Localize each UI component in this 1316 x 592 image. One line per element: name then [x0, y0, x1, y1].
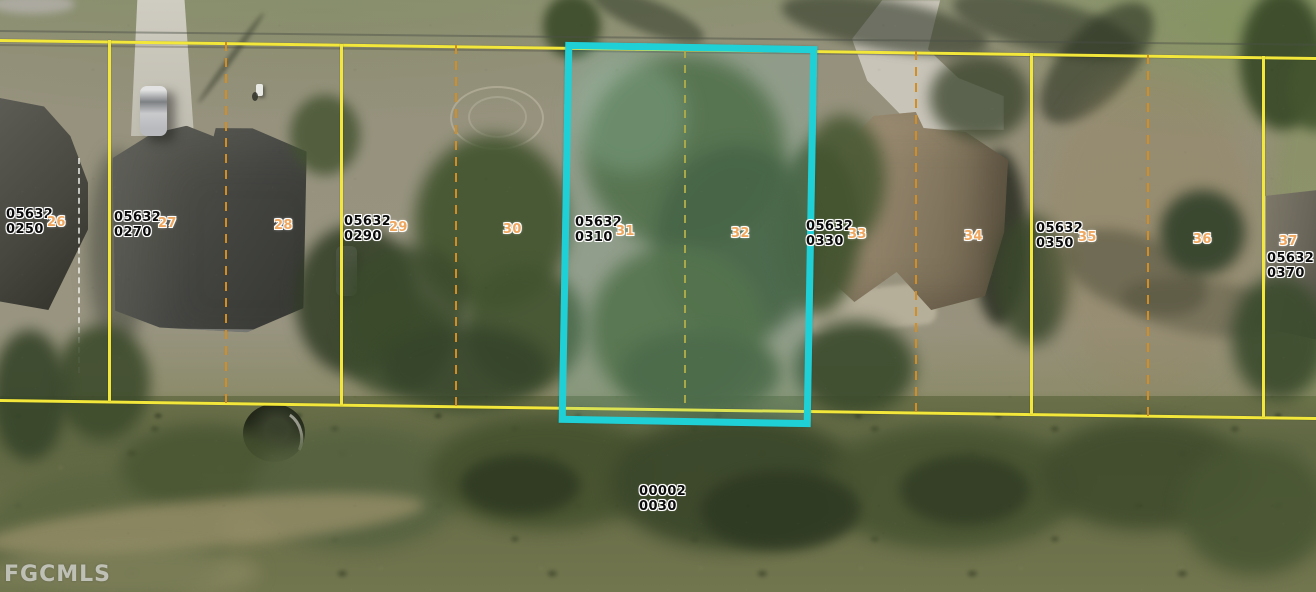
parcel-label-line1: 05632 — [806, 219, 853, 234]
parcel-label-05632-0370: 05632 0370 — [1267, 251, 1314, 281]
parcel-label-line1: 05632 — [1036, 221, 1083, 236]
parcel-label-line2: 0350 — [1036, 236, 1083, 251]
lot-number-28: 28 — [274, 218, 293, 233]
house-roof-left-edge — [0, 98, 88, 310]
watermark: FGCMLS — [4, 562, 111, 587]
parcel-label-line1: 00002 — [639, 484, 686, 499]
parcel-label-05632-0350: 05632 0350 — [1036, 221, 1083, 251]
tree-canopy — [55, 325, 150, 440]
palm-canopy — [930, 55, 1030, 140]
scrub-dark-clump — [460, 455, 580, 515]
parcel-label-line2: 0370 — [1267, 266, 1314, 281]
tree-canopy — [1232, 275, 1316, 400]
parcel-label-line1: 05632 — [1267, 251, 1314, 266]
tree-canopy — [290, 95, 360, 175]
lot-number-35: 35 — [1078, 230, 1097, 245]
parcel-label-line2: 0330 — [806, 234, 853, 249]
parcel-label-line1: 05632 — [114, 210, 161, 225]
lot-number-30: 30 — [503, 222, 522, 237]
parcel-label-05632-0270: 05632 0270 — [114, 210, 161, 240]
utility-pole — [252, 92, 258, 101]
lot-number-36: 36 — [1193, 232, 1212, 247]
lot-number-27: 27 — [158, 216, 177, 231]
parcel-label-line1: 05632 — [344, 214, 391, 229]
tree-canopy — [795, 320, 915, 415]
scrub-dark-clump — [700, 470, 860, 550]
parcel-boundary-line — [108, 40, 111, 401]
lot-split-line — [455, 45, 457, 406]
parcel-label-line2: 0290 — [344, 229, 391, 244]
lot-number-31: 31 — [616, 224, 635, 239]
lot-number-32: 32 — [731, 226, 750, 241]
lot-number-34: 34 — [964, 229, 983, 244]
lot-split-line — [915, 51, 917, 412]
tree-canopy — [380, 325, 550, 410]
lot-split-line — [1147, 55, 1149, 416]
road-pavement-corner — [0, 0, 75, 14]
car-silver — [140, 86, 167, 136]
parcel-label-05632-0330: 05632 0330 — [806, 219, 853, 249]
lot-number-26: 26 — [47, 215, 66, 230]
lot-number-29: 29 — [389, 220, 408, 235]
parcel-label-00002-0030: 00002 0030 — [639, 484, 686, 514]
faint-circle-track-inner — [468, 96, 527, 138]
aerial-parcel-map[interactable]: 05632 0250 05632 0270 05632 0290 05632 0… — [0, 0, 1316, 592]
parcel-boundary-line — [1030, 53, 1033, 414]
parcel-boundary-line — [1262, 56, 1265, 417]
parcel-label-line2: 0030 — [639, 499, 686, 514]
parcel-label-line2: 0270 — [114, 225, 161, 240]
scrub-dark-clump — [900, 455, 1030, 525]
lot-number-37: 37 — [1279, 234, 1298, 249]
parcel-boundary-line — [340, 44, 343, 405]
lot-split-line — [225, 42, 227, 403]
parcel-label-05632-0290: 05632 0290 — [344, 214, 391, 244]
lot-number-33: 33 — [848, 227, 867, 242]
